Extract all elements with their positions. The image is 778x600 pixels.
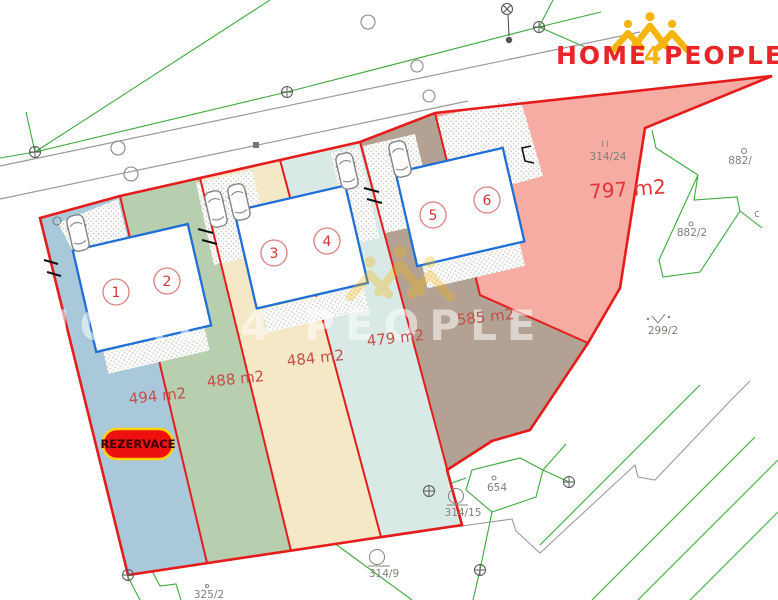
label-c: c	[754, 208, 760, 220]
house-number-6: 6	[483, 193, 492, 209]
label-314-24: 314/24	[590, 151, 627, 163]
lamp-icon	[502, 4, 513, 44]
label-325-2: 325/2	[194, 589, 224, 600]
label-roman-ii: II	[601, 140, 610, 150]
home4people-logo: HOME 4 PEOPLE	[556, 12, 778, 70]
site-plan-map: 1 2 3 4 5 6	[0, 0, 778, 600]
label-654: 654	[487, 482, 507, 494]
logo-four-text: 4	[644, 41, 661, 70]
label-882-2: 882/2	[677, 227, 707, 239]
house-number-4: 4	[323, 234, 332, 250]
road-square-marker	[253, 142, 259, 148]
logo-home-text: HOME	[556, 41, 648, 70]
label-314-9: 314/9	[369, 568, 399, 580]
label-882: 882/	[728, 155, 752, 167]
house-number-1: 1	[112, 285, 121, 301]
house-number-2: 2	[163, 274, 172, 290]
house-number-5: 5	[429, 208, 438, 224]
house-number-3: 3	[270, 246, 279, 262]
label-314-15: 314/15	[445, 507, 482, 519]
label-299-2: 299/2	[648, 325, 678, 337]
rezervace-badge: REZERVACE	[100, 429, 175, 459]
site-plan-page: 1 2 3 4 5 6	[0, 0, 778, 600]
logo-people-text: PEOPLE	[664, 41, 778, 70]
rezervace-badge-label: REZERVACE	[100, 437, 175, 451]
area-label-6: 797 m2	[588, 174, 666, 203]
